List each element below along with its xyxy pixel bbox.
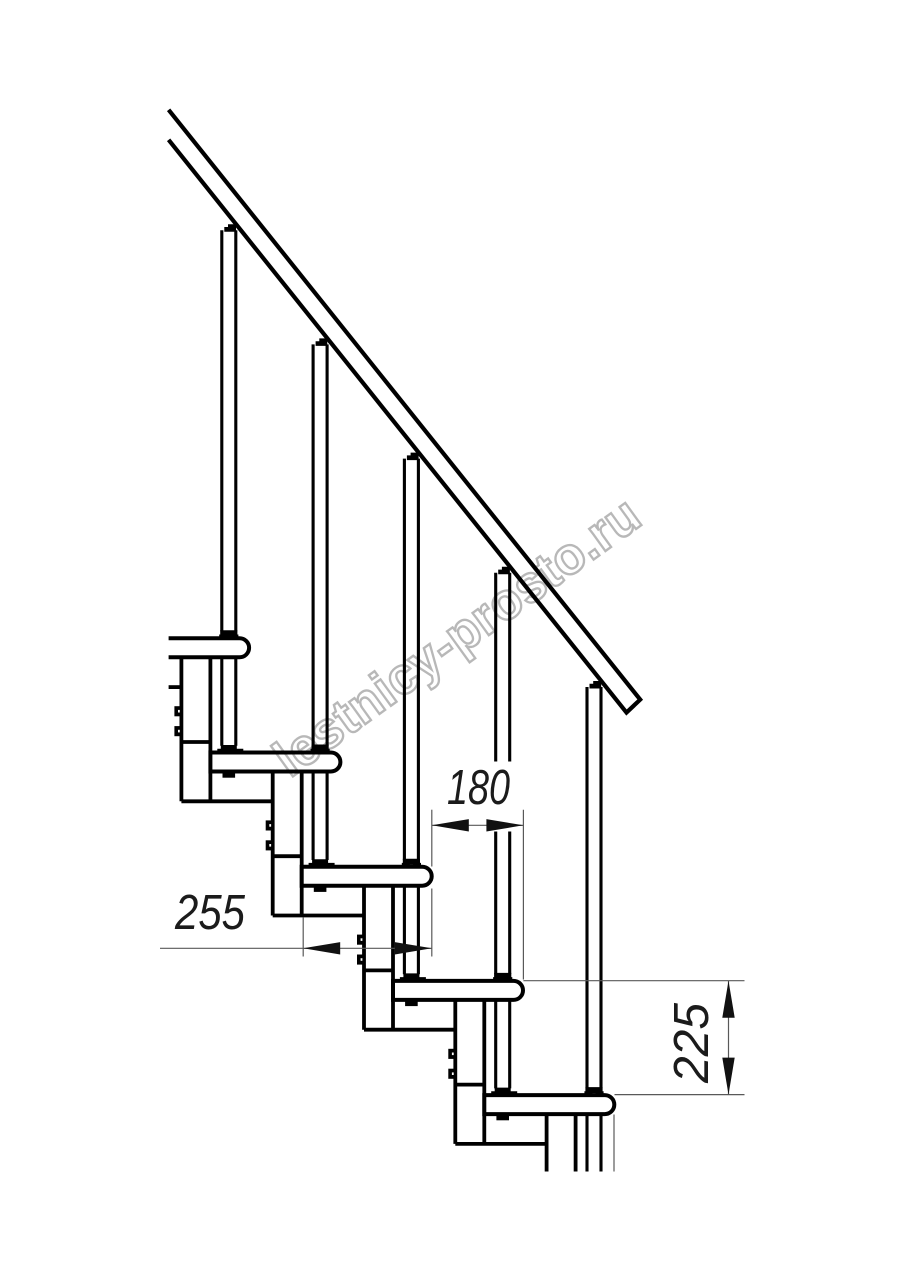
svg-text:225: 225: [665, 1002, 719, 1084]
svg-text:180: 180: [447, 761, 510, 815]
svg-text:255: 255: [174, 886, 245, 940]
